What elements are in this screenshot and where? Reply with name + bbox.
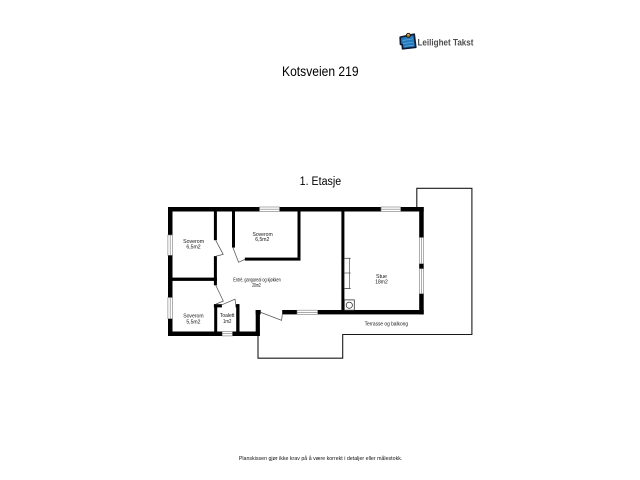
svg-text:6,5m2: 6,5m2 <box>255 237 269 243</box>
svg-text:Planskissen gjør ikke krav på: Planskissen gjør ikke krav på å være kor… <box>239 455 403 462</box>
svg-text:1m2: 1m2 <box>223 319 231 325</box>
svg-text:1. Etasje: 1. Etasje <box>300 176 342 188</box>
svg-text:Leilighet Takst: Leilighet Takst <box>418 37 475 48</box>
svg-text:5,5m2: 5,5m2 <box>186 320 200 326</box>
svg-text:6,5m2: 6,5m2 <box>186 245 200 251</box>
svg-text:18m2: 18m2 <box>375 280 388 286</box>
svg-text:Terrasse og balkong: Terrasse og balkong <box>365 321 408 327</box>
svg-text:20m2: 20m2 <box>252 283 261 289</box>
svg-text:Kotsveien 219: Kotsveien 219 <box>282 63 359 79</box>
